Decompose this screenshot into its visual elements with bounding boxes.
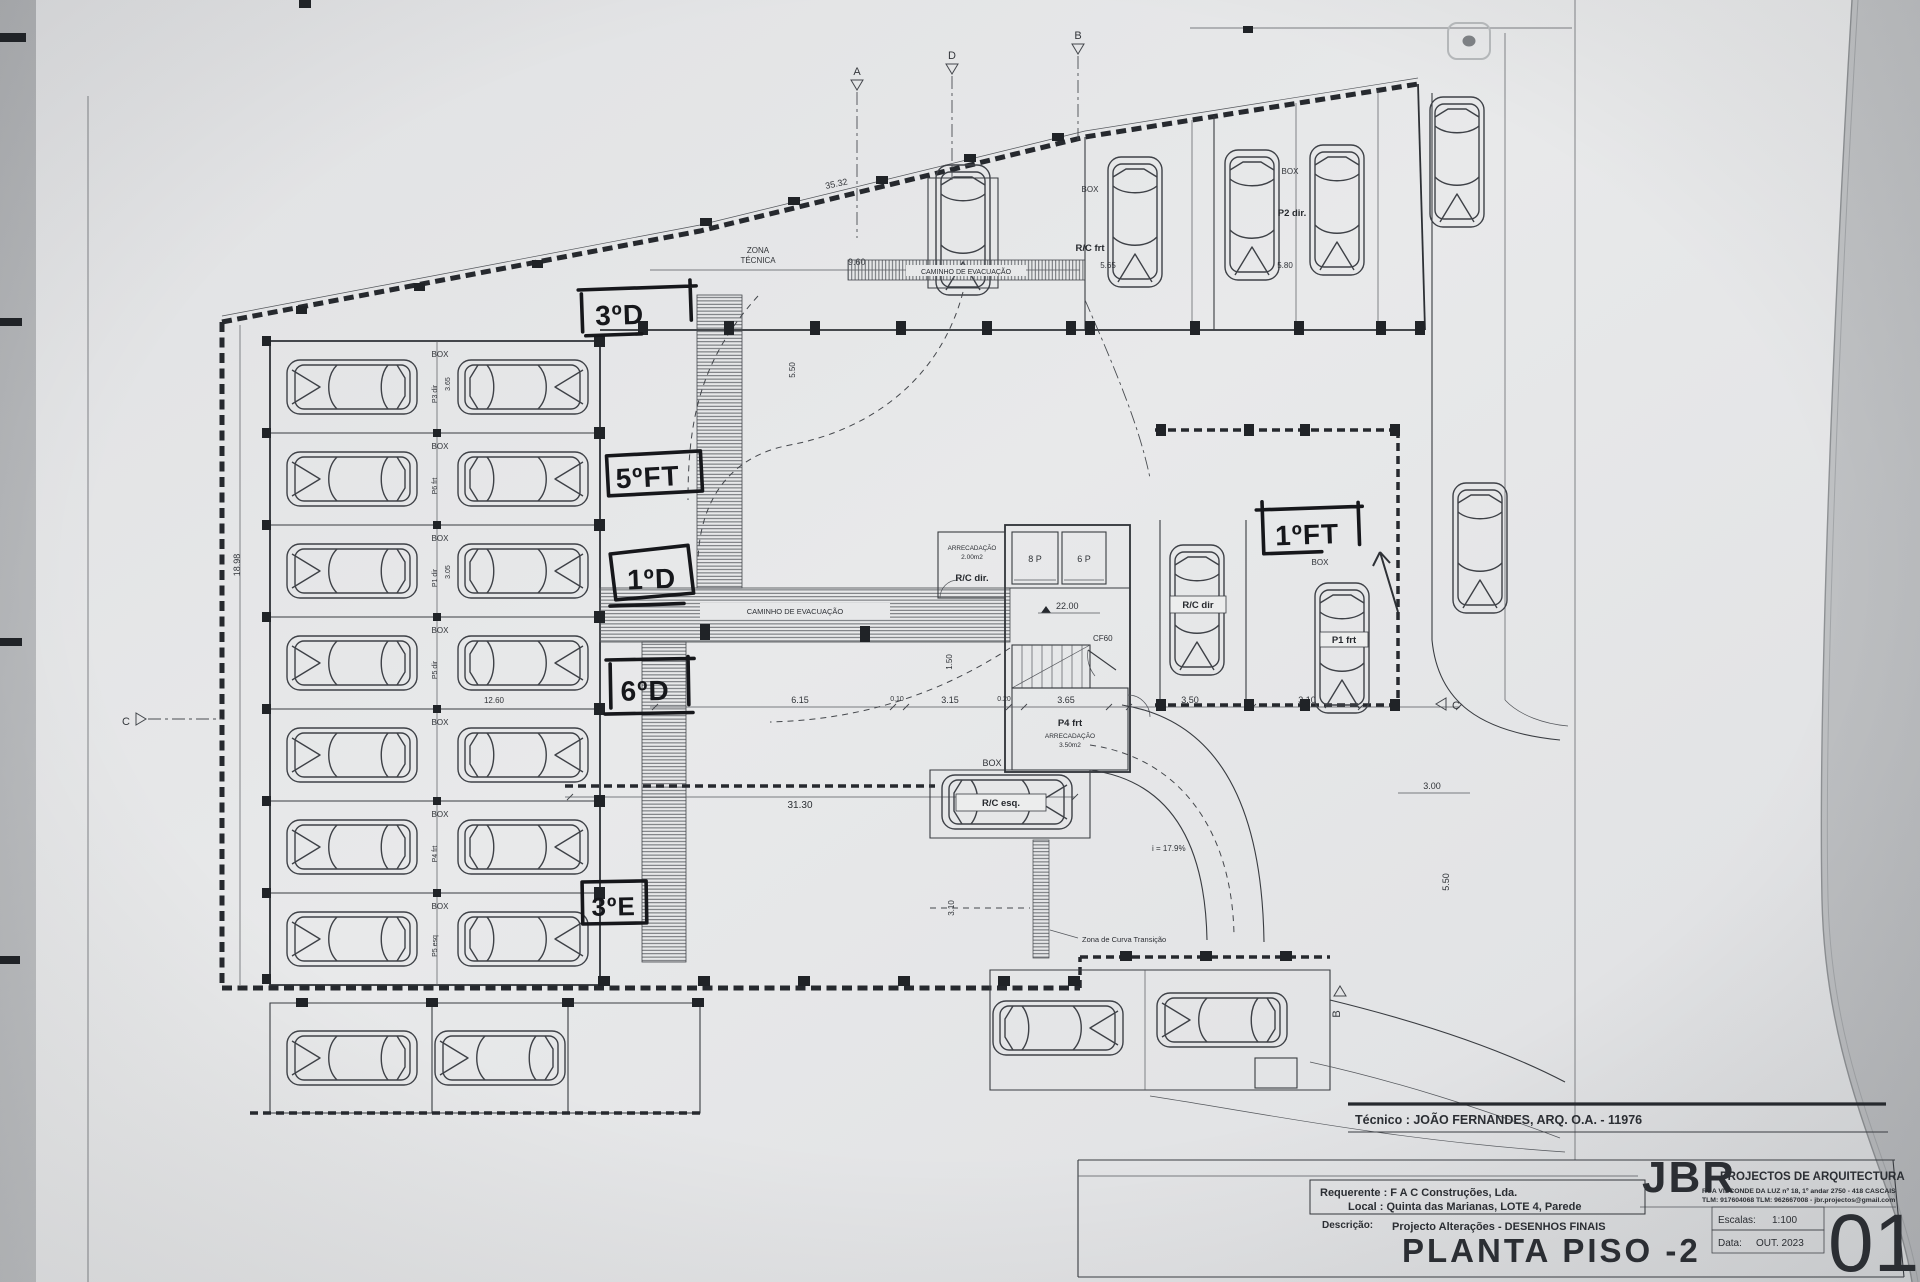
edge-registration-mark bbox=[0, 318, 22, 326]
dimension-0-10: 0.10 bbox=[890, 696, 904, 703]
unit-label-p1-frt: P1 frt bbox=[1332, 635, 1357, 646]
svg-text:6ºD: 6ºD bbox=[620, 675, 670, 707]
box-label: BOX bbox=[432, 718, 450, 727]
stall-dimension: 3.65 bbox=[445, 377, 452, 391]
edge-registration-mark bbox=[0, 956, 20, 964]
stall-unit-label: P6 frt bbox=[432, 478, 439, 495]
box-label: BOX bbox=[432, 626, 450, 635]
dimension-0-20: 0.20 bbox=[997, 696, 1011, 703]
stall-unit-label: P5 esq bbox=[432, 935, 439, 957]
svg-text:3ºD: 3ºD bbox=[595, 299, 645, 332]
unit-label-p4-frt: P4 frt bbox=[1058, 718, 1083, 729]
box-label: BOX bbox=[432, 442, 450, 451]
dimension-31-30: 31.30 bbox=[787, 800, 812, 811]
section-marker-a: A bbox=[853, 66, 861, 78]
data-value: OUT. 2023 bbox=[1756, 1238, 1804, 1249]
unit-label-rc-esq: R/C esq. bbox=[982, 798, 1020, 809]
stall-unit-label: P4 frt bbox=[432, 846, 439, 863]
storage-area-value: 3.50m2 bbox=[1059, 742, 1081, 749]
box-label: BOX bbox=[1282, 167, 1300, 176]
dimension-3-65: 3.65 bbox=[1057, 695, 1075, 705]
escalas-value: 1:100 bbox=[1772, 1215, 1797, 1226]
section-marker-c: C bbox=[122, 716, 130, 728]
door-cf60-label: CF60 bbox=[1093, 634, 1113, 643]
box-label: BOX bbox=[432, 810, 450, 819]
requerente-line: Requerente : F A C Construções, Lda. bbox=[1320, 1187, 1517, 1199]
stall-dimension: 3.05 bbox=[445, 565, 452, 579]
storage-label: ARRECADAÇÃO bbox=[948, 543, 997, 552]
edge-registration-mark bbox=[1243, 26, 1253, 33]
unit-label-rc-dir-room: R/C dir. bbox=[955, 573, 988, 584]
box-label: BOX bbox=[1312, 558, 1330, 567]
svg-text:1ºFT: 1ºFT bbox=[1275, 518, 1340, 551]
section-marker-b: B bbox=[1074, 30, 1081, 42]
stall-unit-label: P1 dir bbox=[432, 568, 439, 587]
sheet-number: 01 bbox=[1828, 1198, 1919, 1282]
edge-registration-mark bbox=[299, 0, 311, 8]
dimension-5-65: 5.65 bbox=[1100, 261, 1116, 270]
zona-tecnica-label: ZONA bbox=[747, 246, 770, 255]
elevator-label: 8 P bbox=[1028, 554, 1042, 564]
storage-label: ARRECADAÇÃO bbox=[1045, 731, 1095, 740]
tecnico-line: Técnico : JOÃO FERNANDES, ARQ. O.A. - 11… bbox=[1355, 1112, 1642, 1127]
sheet-title: PLANTA PISO -2 bbox=[1402, 1232, 1701, 1269]
unit-label-rc-dir: R/C dir bbox=[1182, 600, 1213, 611]
dimension-3-00: 3.00 bbox=[1423, 781, 1441, 791]
evacuation-path-label: CAMINHO DE EVACUAÇÃO bbox=[747, 607, 844, 616]
escalas-label: Escalas: bbox=[1718, 1215, 1756, 1226]
box-label: BOX bbox=[1082, 185, 1100, 194]
edge-registration-mark bbox=[0, 638, 22, 646]
level-value: 22.00 bbox=[1056, 601, 1079, 611]
dimension-5-80: 5.80 bbox=[1277, 261, 1293, 270]
firm-address: RUA VISCONDE DA LUZ nº 18, 1º andar 2750… bbox=[1702, 1188, 1896, 1195]
svg-text:3ºE: 3ºE bbox=[591, 891, 636, 922]
descricao-label: Descrição: bbox=[1322, 1220, 1373, 1231]
box-label: BOX bbox=[982, 758, 1001, 768]
section-marker-b: B bbox=[1331, 1010, 1343, 1017]
section-marker-d: D bbox=[948, 50, 956, 62]
dimension-18-98: 18.98 bbox=[232, 554, 242, 577]
box-label: BOX bbox=[432, 902, 450, 911]
evacuation-path-label: CAMINHO DE EVACUAÇÃO bbox=[921, 267, 1012, 276]
section-marker-c: C bbox=[1452, 700, 1460, 712]
zona-tecnica-label: TÉCNICA bbox=[740, 256, 776, 265]
box-label: BOX bbox=[432, 534, 450, 543]
transition-curve-label: Zona de Curva Transição bbox=[1082, 935, 1166, 944]
svg-text:1ºD: 1ºD bbox=[627, 563, 677, 596]
elevator-label: 6 P bbox=[1077, 554, 1091, 564]
data-label: Data: bbox=[1718, 1238, 1742, 1249]
stall-unit-label: P5 dir bbox=[432, 660, 439, 679]
floor-plan-drawing: BOX BOX BOX BOX BOX BOX BOX P3 dir P6 fr… bbox=[0, 0, 1920, 1282]
box-label: BOX bbox=[432, 350, 450, 359]
dimension-12-60: 12.60 bbox=[484, 696, 505, 705]
dimension-3-15: 3.15 bbox=[941, 695, 959, 705]
dimension-5-50: 5.50 bbox=[788, 362, 797, 378]
dimension-1-50: 1.50 bbox=[945, 654, 954, 670]
dimension-5-50: 5.50 bbox=[1441, 873, 1451, 891]
ramp-slope-label: i = 17.9% bbox=[1152, 844, 1186, 853]
svg-text:5ºFT: 5ºFT bbox=[615, 460, 681, 494]
photographed-plan-sheet: BOX BOX BOX BOX BOX BOX BOX P3 dir P6 fr… bbox=[0, 0, 1920, 1282]
dimension-3-10: 3.10 bbox=[947, 900, 956, 916]
firm-logo-subtitle: PROJECTOS DE ARQUITECTURA bbox=[1720, 1171, 1905, 1183]
edge-registration-mark bbox=[0, 33, 26, 42]
storage-area-value: 2.00m2 bbox=[961, 554, 983, 561]
local-line: Local : Quinta das Marianas, LOTE 4, Par… bbox=[1348, 1201, 1582, 1213]
stall-unit-label: P3 dir bbox=[432, 384, 439, 403]
unit-label-p2-dir: P2 dir. bbox=[1278, 208, 1307, 219]
dimension-6-15: 6.15 bbox=[791, 695, 809, 705]
unit-label-rc-frt: R/C frt bbox=[1075, 243, 1105, 254]
